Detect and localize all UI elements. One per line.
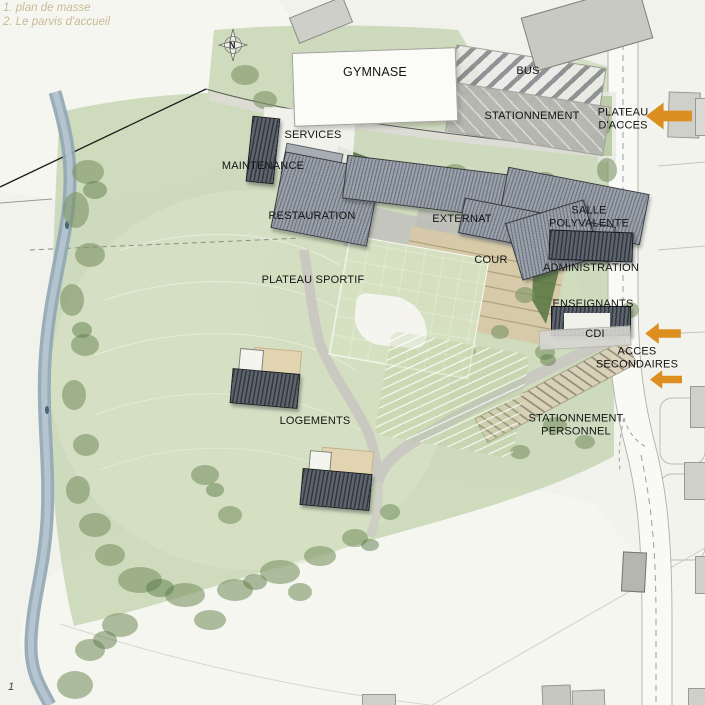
acces-secondaire-arrow-icon-2: [650, 370, 682, 389]
label-plateau-sportif: PLATEAU SPORTIF: [262, 274, 365, 287]
label-salle-polyvalente: SALLE POLYVALENTE: [549, 205, 629, 230]
label-gymnase: GYMNASE: [343, 66, 407, 79]
existing-house: [621, 551, 647, 592]
label-enseignants: ENSEIGNANTS: [552, 298, 633, 311]
label-plateau-acces: PLATEAU D'ACCES: [598, 107, 649, 132]
existing-house: [362, 694, 396, 705]
logements-building-1: [230, 368, 301, 409]
label-maintenance: MAINTENANCE: [222, 160, 304, 173]
north-compass-icon: N: [218, 28, 248, 64]
existing-house: [542, 685, 572, 705]
administration-building: [549, 230, 634, 263]
label-stationnement-personnel: STATIONNEMENT PERSONNEL: [528, 413, 623, 438]
gymnase-building: [292, 47, 458, 127]
existing-house: [684, 462, 705, 500]
existing-house: [690, 386, 705, 428]
label-bus: BUS: [516, 65, 539, 78]
site-plan-canvas: N GYMNASE BUS STATIONNEMENT PLATEAU D'AC…: [0, 0, 705, 705]
label-services: SERVICES: [284, 129, 341, 142]
label-logements: LOGEMENTS: [280, 415, 351, 428]
figure-caption-line-2: 2. Le parvis d'accueil: [3, 15, 110, 29]
label-restauration: RESTAURATION: [269, 210, 356, 223]
label-externat: EXTERNAT: [432, 213, 491, 226]
logements-building-2: [300, 468, 373, 511]
compass-north-letter: N: [229, 40, 236, 50]
plateau-acces-arrow-icon: [646, 102, 692, 130]
figure-number: 1: [8, 681, 14, 693]
label-cdi: CDI: [585, 328, 605, 341]
existing-house: [695, 556, 705, 594]
existing-house: [688, 688, 705, 705]
label-cour: COUR: [474, 254, 507, 267]
acces-secondaire-arrow-icon-1: [645, 323, 681, 344]
label-stationnement: STATIONNEMENT: [484, 110, 579, 123]
label-acces-secondaires: ACCES SECONDAIRES: [596, 346, 678, 371]
label-administration: ADMINISTRATION: [543, 262, 639, 275]
existing-house: [695, 98, 705, 136]
figure-caption-line-1: 1. plan de masse: [3, 1, 91, 15]
existing-house: [572, 689, 606, 705]
